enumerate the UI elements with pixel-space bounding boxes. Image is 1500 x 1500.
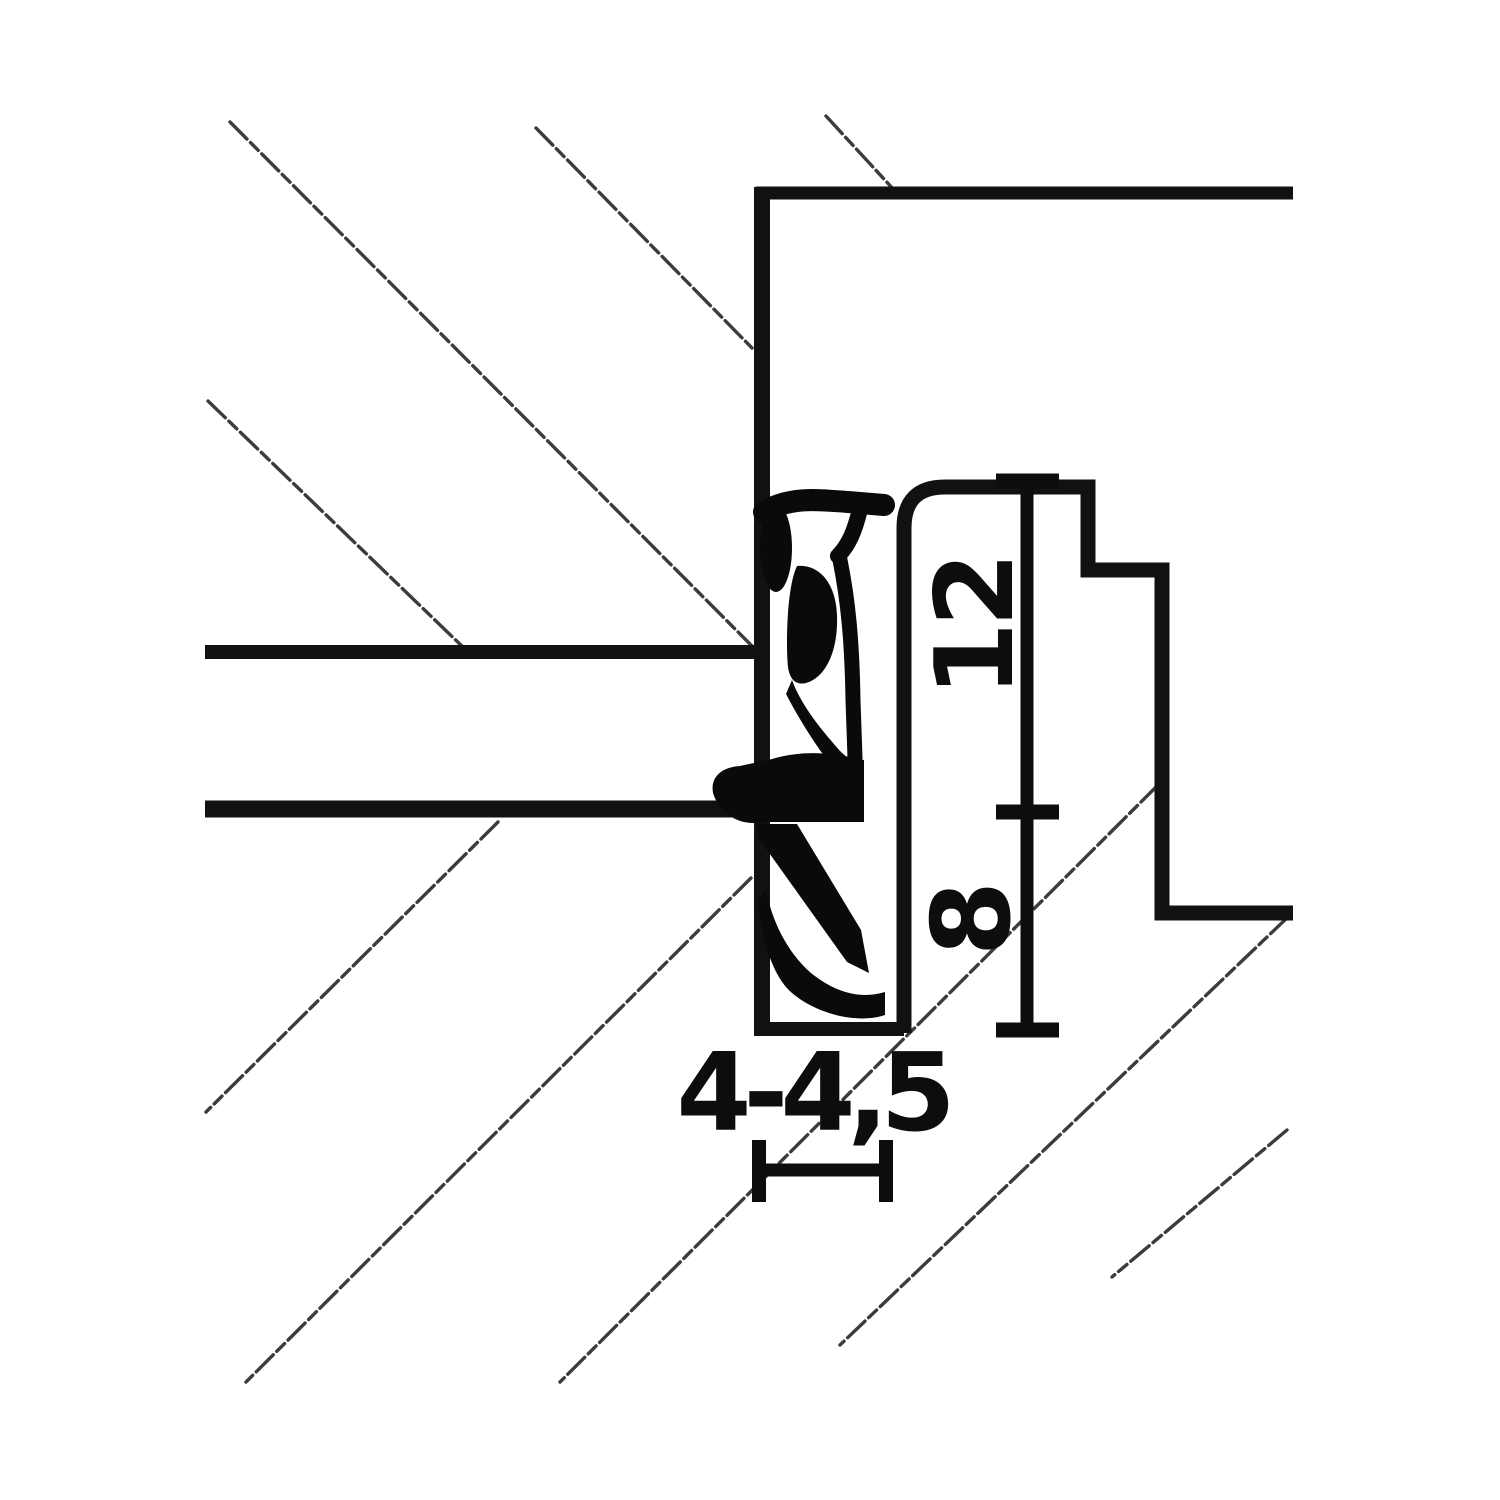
- hatch-line: [206, 822, 498, 1112]
- frame-outline: [205, 187, 1293, 1036]
- hatch-line: [208, 401, 466, 650]
- dimension-label-8: 8: [910, 886, 1035, 956]
- seal-profile: [713, 500, 885, 1018]
- seal-foot: [713, 753, 864, 823]
- seal-hook: [838, 509, 860, 556]
- hatch-line: [826, 116, 895, 191]
- seal-nub: [760, 504, 792, 592]
- dimension-label-12: 12: [913, 557, 1038, 697]
- hatch-line: [230, 122, 752, 646]
- seal-bulge: [787, 566, 837, 684]
- seal-wall: [840, 560, 855, 758]
- dimension-label-groove-width: 4-4,5: [676, 1031, 948, 1156]
- hatch-line: [1112, 1130, 1287, 1277]
- hatch-line: [536, 128, 752, 348]
- technical-drawing-page: 12 8 4-4,5: [0, 0, 1500, 1500]
- hatch-lines: [206, 116, 1288, 1382]
- hatch-line: [246, 878, 751, 1382]
- seal-cross-section-drawing: 12 8 4-4,5: [0, 0, 1500, 1500]
